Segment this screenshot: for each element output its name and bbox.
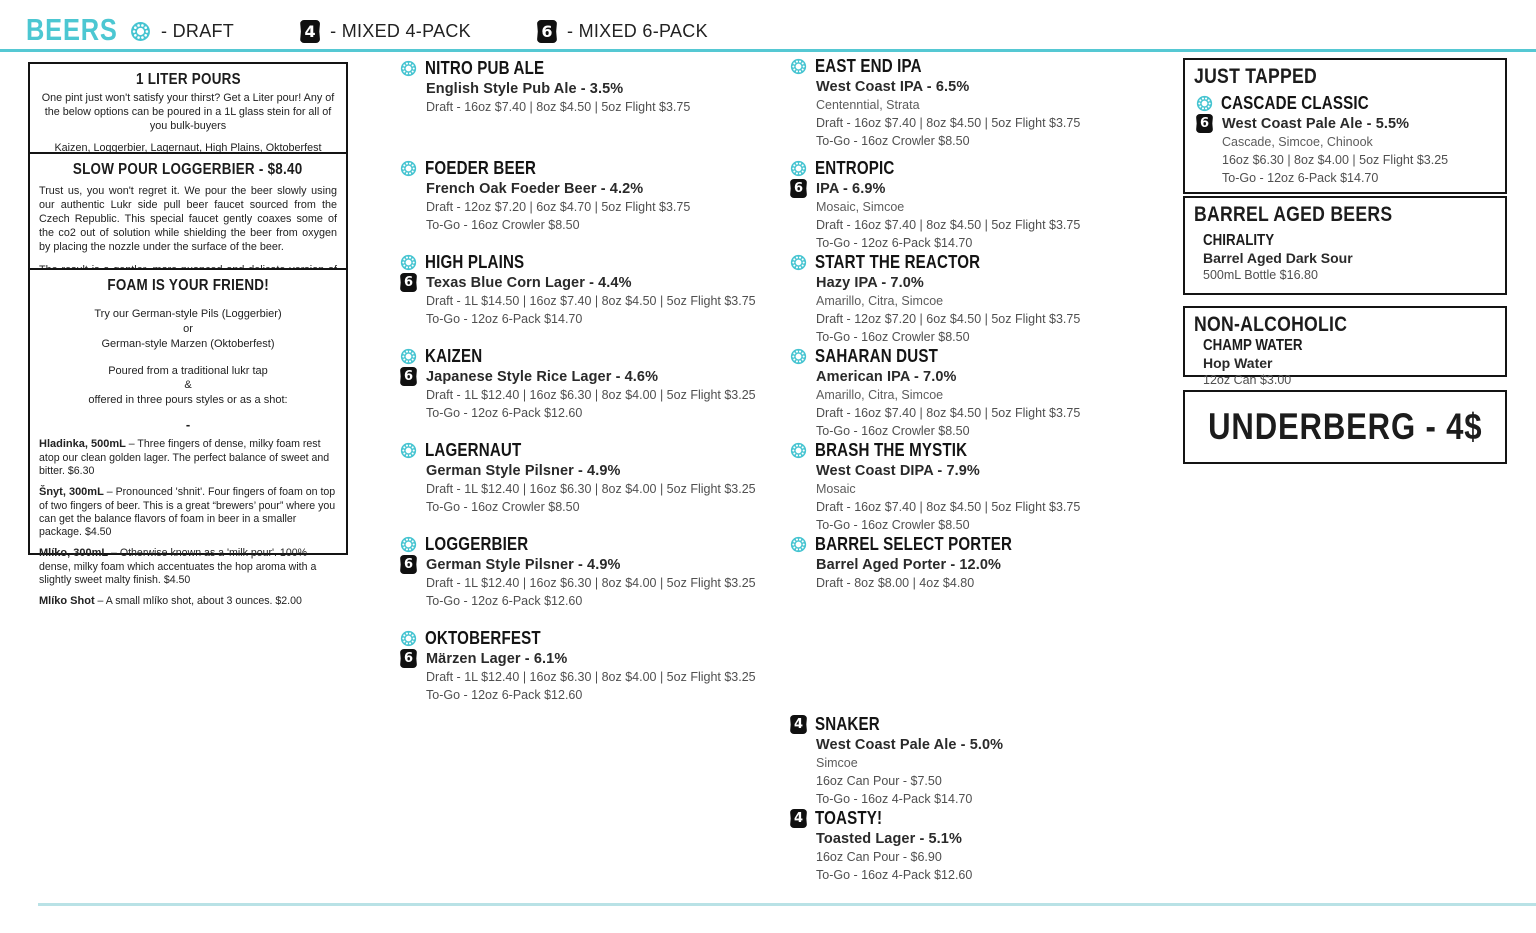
beer-start-the-reactor: START THE REACTOR Hazy IPA - 7.0% Amaril… [790, 252, 1140, 346]
six-pack-icon: 6 [790, 179, 807, 198]
six-pack-icon: 6 [400, 555, 417, 574]
beer-champ-water: CHAMP WATER Hop Water 12oz Can $3.00 [1203, 337, 1496, 389]
draft-icon [790, 442, 807, 459]
foam-line2: or [39, 322, 337, 337]
draft-icon [130, 21, 151, 42]
non-alcoholic-title: NON-ALCOHOLIC [1194, 313, 1496, 337]
beer-price-can: 16oz Can Pour - $7.50 [816, 772, 1140, 790]
beer-name: CHIRALITY [1203, 232, 1274, 250]
beer-price-togo: To-Go - 16oz Crowler $8.50 [816, 328, 1140, 346]
beer-name: START THE REACTOR [815, 252, 980, 273]
non-alcoholic-box: NON-ALCOHOLIC CHAMP WATER Hop Water 12oz… [1183, 306, 1507, 377]
beer-toasty: 4 TOASTY! Toasted Lager - 5.1% 16oz Can … [790, 808, 1140, 884]
beer-price: 500mL Bottle $16.80 [1203, 267, 1496, 284]
beer-style: Hazy IPA - 7.0% [816, 275, 924, 291]
draft-icon [1196, 95, 1213, 112]
six-pack-icon: 6 [400, 367, 417, 386]
draft-icon [400, 348, 417, 365]
foam-line3: German-style Marzen (Oktoberfest) [39, 337, 337, 352]
four-pack-icon: 4 [790, 715, 807, 734]
beer-column-left: NITRO PUB ALE English Style Pub Ale - 3.… [400, 58, 750, 722]
slow-pour-title: SLOW POUR LOGGERBIER - $8.40 [39, 161, 337, 179]
liter-pours-title: 1 LITER POURS [39, 71, 337, 89]
beer-high-plains: HIGH PLAINS 6 Texas Blue Corn Lager - 4.… [400, 252, 750, 328]
beer-name: HIGH PLAINS [425, 252, 524, 273]
beer-price-draft: Draft - 1L $12.40 | 16oz $6.30 | 8oz $4.… [426, 668, 750, 686]
foam-dash: - [39, 420, 337, 430]
beer-price-togo: To-Go - 12oz 6-Pack $12.60 [426, 592, 750, 610]
beer-price-togo: To-Go - 12oz 6-Pack $14.70 [816, 234, 1140, 252]
beer-price-draft: Draft - 16oz $7.40 | 8oz $4.50 | 5oz Fli… [816, 114, 1140, 132]
beer-name: FOEDER BEER [425, 158, 536, 179]
beer-style: Toasted Lager - 5.1% [816, 831, 962, 847]
beer-style: French Oak Foeder Beer - 4.2% [426, 181, 643, 197]
beer-price-togo: To-Go - 12oz 6-Pack $12.60 [426, 404, 750, 422]
slow-pour-para1: Trust us, you won't regret it. We pour t… [39, 184, 337, 254]
draft-icon [790, 58, 807, 75]
pour-snyt: Šnyt, 300mL – Pronounced 'shnit'. Four f… [39, 486, 337, 539]
beer-name: SAHARAN DUST [815, 346, 938, 367]
beer-name: BRASH THE MYSTIK [815, 440, 967, 461]
beer-style: West Coast Pale Ale - 5.5% [1222, 116, 1409, 132]
draft-icon [790, 348, 807, 365]
beer-oktoberfest: OKTOBERFEST 6 Märzen Lager - 6.1% Draft … [400, 628, 750, 704]
foam-line1: Try our German-style Pils (Loggerbier) [39, 307, 337, 322]
beer-chirality: CHIRALITY Barrel Aged Dark Sour 500mL Bo… [1203, 232, 1496, 284]
beer-hops: Centenntial, Strata [816, 96, 1140, 114]
beer-entropic: ENTROPIC 6 IPA - 6.9% Mosaic, Simcoe Dra… [790, 158, 1140, 252]
legend-six-pack-label: - MIXED 6-PACK [567, 21, 708, 42]
draft-icon [400, 60, 417, 77]
six-pack-icon: 6 [400, 273, 417, 292]
legend-four-pack: 4 - MIXED 4-PACK [300, 20, 471, 43]
beer-name: LAGERNAUT [425, 440, 521, 461]
beer-price-togo: To-Go - 12oz 6-Pack $14.70 [426, 310, 750, 328]
beer-style: Barrel Aged Dark Sour [1203, 250, 1496, 267]
liter-pours-body: One pint just won't satisfy your thirst?… [39, 91, 337, 133]
just-tapped-title: JUST TAPPED [1194, 65, 1496, 89]
beer-price-togo: To-Go - 16oz Crowler $8.50 [426, 216, 750, 234]
draft-icon [790, 254, 807, 271]
beer-style: West Coast Pale Ale - 5.0% [816, 737, 1003, 753]
beer-style: West Coast DIPA - 7.9% [816, 463, 980, 479]
beer-snaker: 4 SNAKER West Coast Pale Ale - 5.0% Simc… [790, 714, 1140, 808]
beer-price-draft: Draft - 12oz $7.20 | 6oz $4.50 | 5oz Fli… [816, 310, 1140, 328]
beer-price-togo: To-Go - 16oz 4-Pack $12.60 [816, 866, 1140, 884]
beer-east-end-ipa: EAST END IPA West Coast IPA - 6.5% Cente… [790, 56, 1140, 150]
draft-icon [790, 536, 807, 553]
draft-icon [790, 160, 807, 177]
six-pack-icon: 6 [400, 649, 417, 668]
beer-price-togo: To-Go - 16oz Crowler $8.50 [426, 498, 750, 516]
beer-barrel-select-porter: BARREL SELECT PORTER Barrel Aged Porter … [790, 534, 1140, 592]
beer-column-right: EAST END IPA West Coast IPA - 6.5% Cente… [790, 56, 1140, 884]
beer-style: English Style Pub Ale - 3.5% [426, 81, 623, 97]
beer-hops: Mosaic [816, 480, 1140, 498]
barrel-aged-title: BARREL AGED BEERS [1194, 203, 1496, 227]
legend-four-pack-label: - MIXED 4-PACK [330, 21, 471, 42]
beer-hops: Mosaic, Simcoe [816, 198, 1140, 216]
beer-price-togo: To-Go - 16oz Crowler $8.50 [816, 516, 1140, 534]
foam-box: FOAM IS YOUR FRIEND! Try our German-styl… [28, 268, 348, 555]
beer-saharan-dust: SAHARAN DUST American IPA - 7.0% Amarill… [790, 346, 1140, 440]
beer-style: IPA - 6.9% [816, 181, 886, 197]
beer-price-draft: Draft - 12oz $7.20 | 6oz $4.70 | 5oz Fli… [426, 198, 750, 216]
beer-price-togo: To-Go - 12oz 6-Pack $12.60 [426, 686, 750, 704]
draft-icon [400, 442, 417, 459]
page-title: BEERS [26, 12, 118, 48]
beer-name: SNAKER [815, 714, 880, 735]
header-divider [0, 49, 1536, 52]
draft-icon [400, 254, 417, 271]
legend-draft: - DRAFT [130, 21, 234, 42]
beer-menu: BEERS - DRAFT 4 - MIXED 4-PACK 6 - MIXED… [0, 0, 1536, 933]
beer-price-draft: Draft - 8oz $8.00 | 4oz $4.80 [816, 574, 1140, 592]
beer-price-draft: Draft - 1L $12.40 | 16oz $6.30 | 8oz $4.… [426, 480, 750, 498]
beer-price-draft: 16oz $6.30 | 8oz $4.00 | 5oz Flight $3.2… [1222, 151, 1496, 169]
bottom-divider [38, 903, 1536, 906]
beer-price-draft: Draft - 1L $12.40 | 16oz $6.30 | 8oz $4.… [426, 386, 750, 404]
beer-price-togo: To-Go - 12oz 6-Pack $14.70 [1222, 169, 1496, 187]
underberg-title: UNDERBERG - 4$ [1208, 406, 1482, 448]
beer-style: German Style Pilsner - 4.9% [426, 463, 621, 479]
draft-icon [400, 536, 417, 553]
beer-name: LOGGERBIER [425, 534, 528, 555]
foam-line5: & [39, 378, 337, 393]
beer-style: American IPA - 7.0% [816, 369, 957, 385]
legend-six-pack: 6 - MIXED 6-PACK [537, 20, 708, 43]
beer-price-draft: Draft - 16oz $7.40 | 8oz $4.50 | 5oz Fli… [816, 404, 1140, 422]
beer-style: Barrel Aged Porter - 12.0% [816, 557, 1001, 573]
legend: - DRAFT 4 - MIXED 4-PACK 6 - MIXED 6-PAC… [130, 20, 760, 43]
beer-hops: Simcoe [816, 754, 1140, 772]
draft-icon [400, 160, 417, 177]
beer-name: KAIZEN [425, 346, 482, 367]
beer-cascade-classic: CASCADE CLASSIC 6 West Coast Pale Ale - … [1196, 93, 1496, 187]
beer-kaizen: KAIZEN 6 Japanese Style Rice Lager - 4.6… [400, 346, 750, 422]
underberg-box: UNDERBERG - 4$ [1183, 390, 1507, 464]
foam-title: FOAM IS YOUR FRIEND! [39, 277, 337, 295]
beer-brash-the-mystik: BRASH THE MYSTIK West Coast DIPA - 7.9% … [790, 440, 1140, 534]
foam-line6: offered in three pours styles or as a sh… [39, 393, 337, 408]
beer-price-draft: Draft - 1L $14.50 | 16oz $7.40 | 8oz $4.… [426, 292, 750, 310]
beer-name: NITRO PUB ALE [425, 58, 544, 79]
pour-hladinka: Hladinka, 500mL – Three fingers of dense… [39, 438, 337, 478]
beer-hops: Cascade, Simcoe, Chinook [1222, 133, 1496, 151]
beer-name: TOASTY! [815, 808, 882, 829]
beer-style: Märzen Lager - 6.1% [426, 651, 567, 667]
six-pack-icon: 6 [537, 20, 557, 43]
beer-style: West Coast IPA - 6.5% [816, 79, 969, 95]
beer-style: Texas Blue Corn Lager - 4.4% [426, 275, 632, 291]
four-pack-icon: 4 [790, 809, 807, 828]
beer-price-can: 16oz Can Pour - $6.90 [816, 848, 1140, 866]
beer-style: German Style Pilsner - 4.9% [426, 557, 621, 573]
beer-loggerbier: LOGGERBIER 6 German Style Pilsner - 4.9%… [400, 534, 750, 610]
beer-name: BARREL SELECT PORTER [815, 534, 1012, 555]
beer-price-togo: To-Go - 16oz Crowler $8.50 [816, 132, 1140, 150]
beer-name: ENTROPIC [815, 158, 894, 179]
beer-style: Japanese Style Rice Lager - 4.6% [426, 369, 658, 385]
beer-lagernaut: LAGERNAUT German Style Pilsner - 4.9% Dr… [400, 440, 750, 516]
beer-price-draft: Draft - 16oz $7.40 | 8oz $4.50 | 5oz Fli… [816, 216, 1140, 234]
beer-foeder-beer: FOEDER BEER French Oak Foeder Beer - 4.2… [400, 158, 750, 234]
beer-name: EAST END IPA [815, 56, 922, 77]
beer-hops: Amarillo, Citra, Simcoe [816, 386, 1140, 404]
just-tapped-box: JUST TAPPED CASCADE CLASSIC 6 West Coast… [1183, 58, 1507, 194]
barrel-aged-box: BARREL AGED BEERS CHIRALITY Barrel Aged … [1183, 196, 1507, 295]
pour-mliko: Mlíko, 300mL – Otherwise known as a 'mil… [39, 547, 337, 587]
liter-pours-box: 1 LITER POURS One pint just won't satisf… [28, 62, 348, 163]
beer-price-draft: Draft - 16oz $7.40 | 8oz $4.50 | 5oz Fli… [426, 98, 750, 116]
beer-price-draft: Draft - 16oz $7.40 | 8oz $4.50 | 5oz Fli… [816, 498, 1140, 516]
beer-name: CHAMP WATER [1203, 337, 1302, 355]
beer-style: Hop Water [1203, 355, 1496, 372]
beer-price-togo: To-Go - 16oz Crowler $8.50 [816, 422, 1140, 440]
beer-price-togo: To-Go - 16oz 4-Pack $14.70 [816, 790, 1140, 808]
legend-draft-label: - DRAFT [161, 21, 234, 42]
pour-mliko-shot: Mlíko Shot – A small mlíko shot, about 3… [39, 595, 337, 609]
six-pack-icon: 6 [1196, 114, 1213, 133]
foam-line4: Poured from a traditional lukr tap [39, 364, 337, 379]
beer-hops: Amarillo, Citra, Simcoe [816, 292, 1140, 310]
four-pack-icon: 4 [300, 20, 320, 43]
beer-price: 12oz Can $3.00 [1203, 372, 1496, 389]
beer-nitro-pub-ale: NITRO PUB ALE English Style Pub Ale - 3.… [400, 58, 750, 116]
beer-price-draft: Draft - 1L $12.40 | 16oz $6.30 | 8oz $4.… [426, 574, 750, 592]
beer-name: OKTOBERFEST [425, 628, 541, 649]
draft-icon [400, 630, 417, 647]
beer-name: CASCADE CLASSIC [1221, 93, 1369, 114]
